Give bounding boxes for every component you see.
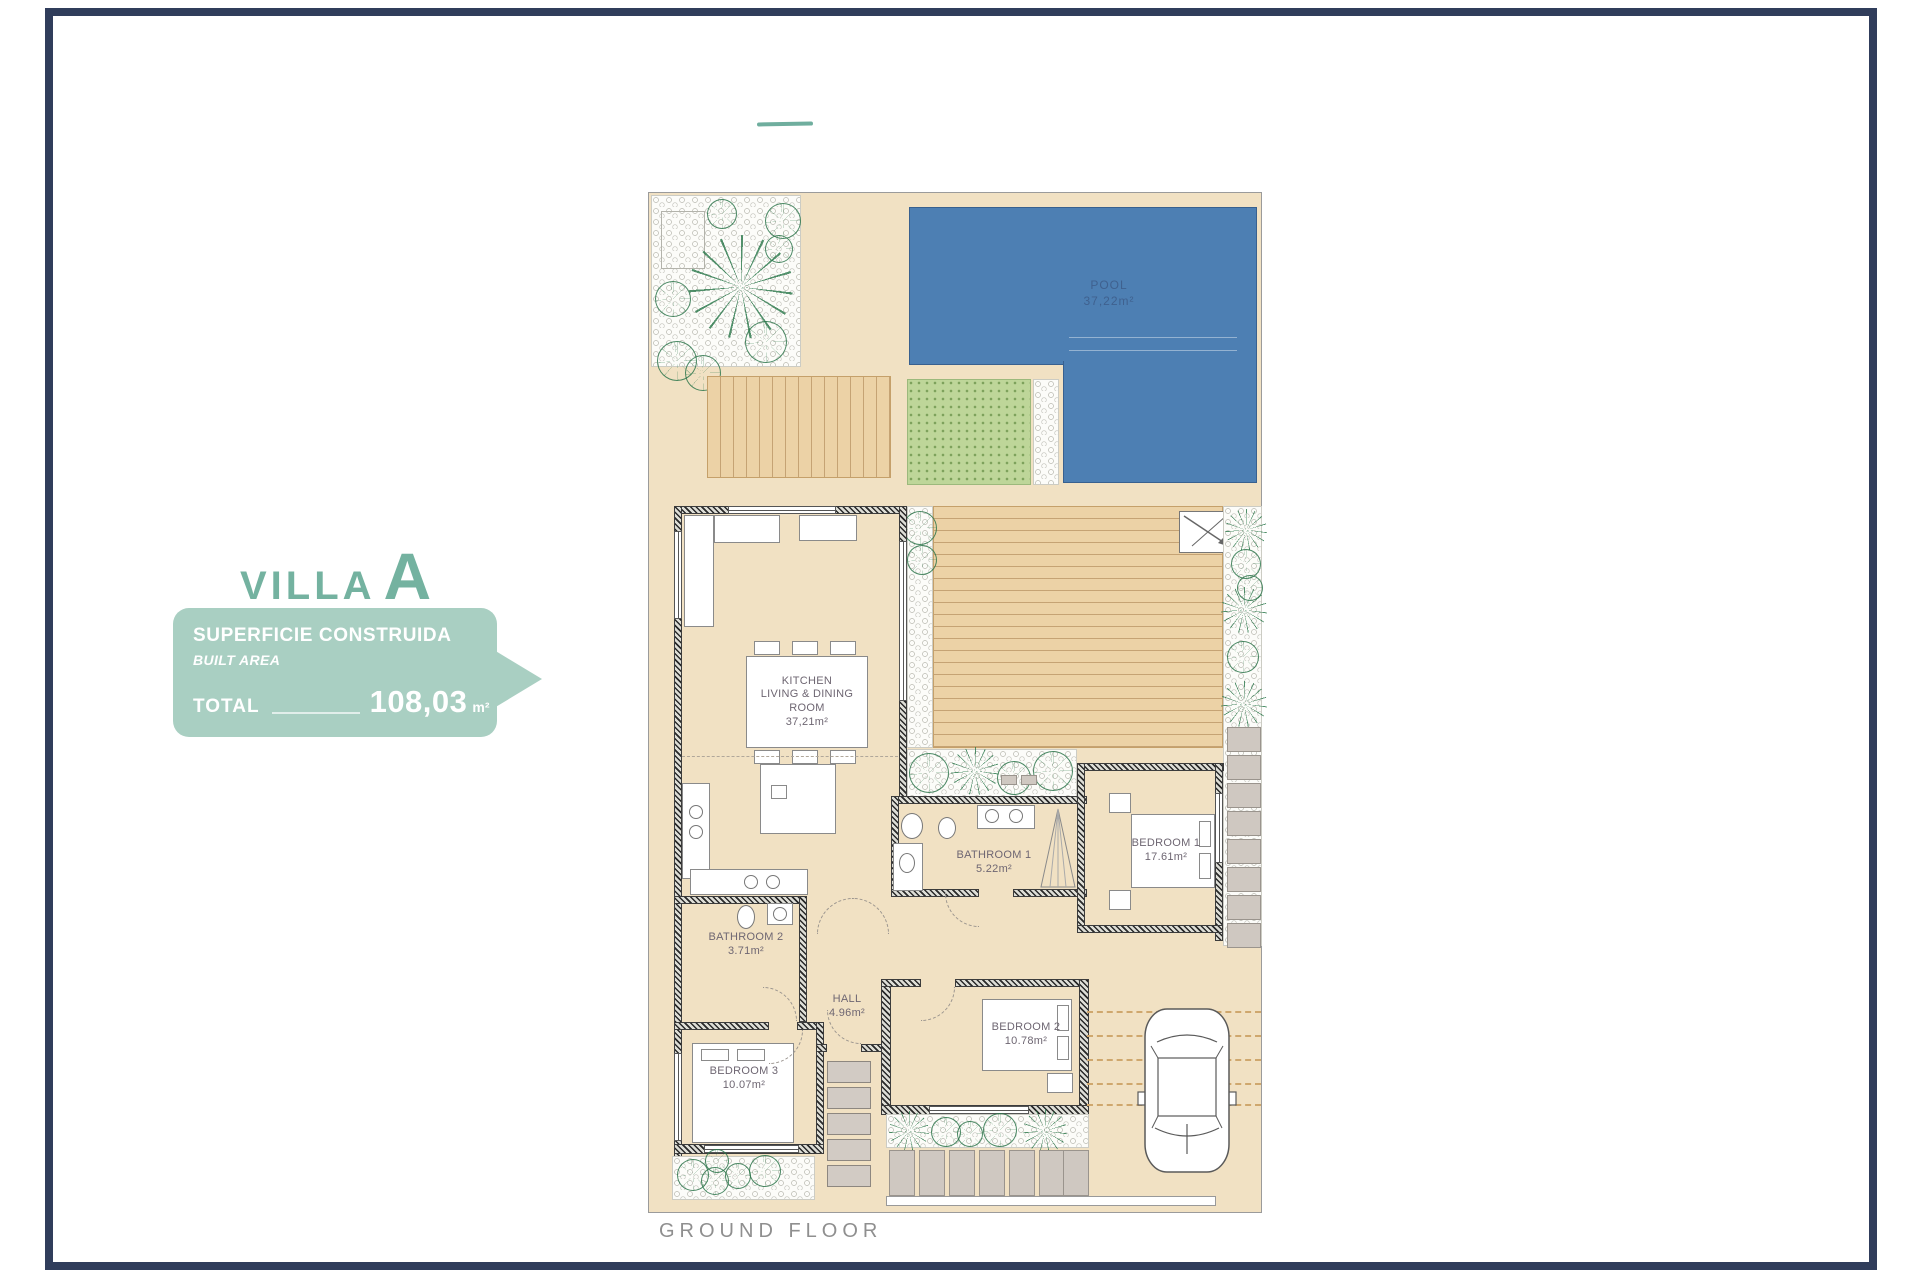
window [674, 531, 682, 619]
total-value: 108,03 [370, 684, 468, 720]
sofa [714, 515, 780, 543]
floor-name-label: GROUND FLOOR [659, 1220, 882, 1243]
tree-icon [983, 1113, 1017, 1147]
kitchen-divider-dashed [682, 756, 898, 757]
bathroom2-label: BATHROOM 2 3.71m² [691, 931, 801, 959]
hob-burner [744, 875, 758, 889]
window [728, 506, 836, 514]
tree-icon [705, 1149, 729, 1173]
door-arc [827, 1010, 861, 1044]
tree-icon [1033, 751, 1073, 791]
nightstand [1047, 1073, 1073, 1093]
stepping-stone [1227, 783, 1261, 808]
panel-title: SUPERFICIE CONSTRUIDA [193, 625, 477, 647]
fence-slat [889, 1150, 915, 1196]
sink [1009, 809, 1023, 823]
fence-slat [1063, 1150, 1089, 1196]
total-divider-line [272, 712, 360, 714]
pillow [737, 1049, 765, 1061]
wall [816, 1022, 824, 1152]
door-arc [945, 893, 979, 927]
palm-tree-icon [951, 747, 999, 795]
grass-patch [907, 379, 1031, 485]
stepping-stone [1227, 811, 1261, 836]
door-arc [817, 898, 853, 934]
bedroom3-label: BEDROOM 3 10.07m² [689, 1065, 799, 1093]
sliding-door [899, 541, 907, 701]
palm-tree-icon [1225, 509, 1267, 551]
fence-slat [1039, 1150, 1065, 1196]
palm-tree-icon [1221, 587, 1267, 633]
wall [1077, 925, 1223, 933]
bathroom1-label: BATHROOM 1 5.22m² [939, 849, 1049, 877]
panel-total-row: TOTAL 108,03 m² [193, 684, 477, 720]
fence-slat [919, 1150, 945, 1196]
tree-icon [707, 199, 737, 229]
stepping-stone [1227, 895, 1261, 920]
step [827, 1061, 871, 1083]
sink [985, 809, 999, 823]
window [929, 1106, 1029, 1114]
tree-icon [903, 511, 937, 545]
nightstand [1109, 793, 1131, 813]
page-title: VILLA A [240, 538, 460, 614]
kitchen-sink [689, 805, 703, 819]
nightstand [1109, 890, 1131, 910]
villa-word: VILLA [240, 564, 376, 609]
pillow [701, 1049, 729, 1061]
wall [674, 1022, 769, 1030]
palm-tree-icon [1023, 1109, 1067, 1153]
dining-chair [792, 641, 818, 655]
kitchen-island [760, 764, 836, 834]
hob-burner [766, 875, 780, 889]
toilet [899, 853, 915, 873]
wood-deck-upper [707, 376, 891, 478]
dining-table: KITCHEN LIVING & DINING ROOM 37,21m² [746, 656, 868, 748]
toilet [938, 817, 956, 839]
stepping-stone [1227, 839, 1261, 864]
kitchen-sink [689, 825, 703, 839]
car-icon [1137, 1006, 1237, 1176]
ac-pad [1021, 775, 1037, 785]
tree-icon [655, 281, 691, 317]
dining-chair [754, 750, 780, 764]
tree-icon [957, 1121, 983, 1147]
toilet [737, 905, 755, 929]
dining-chair [792, 750, 818, 764]
palm-tree-icon [1221, 681, 1267, 727]
gravel-strip [1033, 379, 1059, 485]
tree-icon [745, 321, 787, 363]
fence-slat [1009, 1150, 1035, 1196]
tree-icon [1227, 641, 1259, 673]
pool-label: POOL 37,22m² [1009, 277, 1209, 309]
villa-letter: A [384, 538, 432, 614]
wall [891, 796, 1087, 804]
bedroom1-label: BEDROOM 1 17.61m² [1111, 837, 1221, 865]
total-unit: m² [472, 699, 489, 715]
kitchen-island-detail [771, 785, 787, 799]
floor-plan: POOL 37,22m² [648, 192, 1262, 1213]
washbasin [901, 813, 923, 839]
stepping-stone [1227, 755, 1261, 780]
pool-step-line [1069, 350, 1237, 351]
armchair [799, 515, 857, 541]
dining-chair [754, 641, 780, 655]
tree-icon [907, 545, 937, 575]
pool-water-lower [1063, 361, 1257, 483]
wall [955, 979, 1089, 987]
shower-icon [1037, 805, 1079, 891]
fence-slat [979, 1150, 1005, 1196]
stepping-stone [1227, 867, 1261, 892]
palm-tree-icon [889, 1111, 929, 1151]
tree-icon [749, 1155, 781, 1187]
ac-pad [1001, 775, 1017, 785]
stepping-stone [1227, 923, 1261, 948]
dining-chair [830, 750, 856, 764]
tree-icon [725, 1163, 751, 1189]
door-arc [763, 987, 797, 1021]
bedroom2-label: BEDROOM 2 10.78m² [971, 1021, 1081, 1049]
step [827, 1113, 871, 1135]
total-label: TOTAL [193, 696, 260, 718]
panel-subtitle: BUILT AREA [193, 652, 477, 668]
dining-chair [830, 641, 856, 655]
door-arc [921, 987, 955, 1021]
wall [799, 896, 807, 1022]
stepping-stone [1227, 727, 1261, 752]
wall [881, 979, 921, 987]
step [827, 1139, 871, 1161]
wall [1077, 763, 1224, 771]
curb-line [886, 1196, 1216, 1206]
tree-icon [765, 235, 793, 263]
step [827, 1087, 871, 1109]
step [827, 1165, 871, 1187]
tree-icon [765, 203, 801, 239]
panel-arrow-icon [494, 650, 542, 708]
fence-slat [949, 1150, 975, 1196]
window [674, 1053, 682, 1141]
kitchen-room-label: KITCHEN LIVING & DINING ROOM 37,21m² [761, 675, 854, 730]
door-arc [769, 1030, 803, 1064]
door-arc [853, 898, 889, 934]
sofa [684, 515, 714, 627]
sink [773, 907, 787, 921]
built-area-panel: SUPERFICIE CONSTRUIDA BUILT AREA TOTAL 1… [173, 608, 497, 737]
pool-step-line [1069, 337, 1237, 338]
wall [816, 1044, 827, 1052]
tree-icon [909, 753, 949, 793]
